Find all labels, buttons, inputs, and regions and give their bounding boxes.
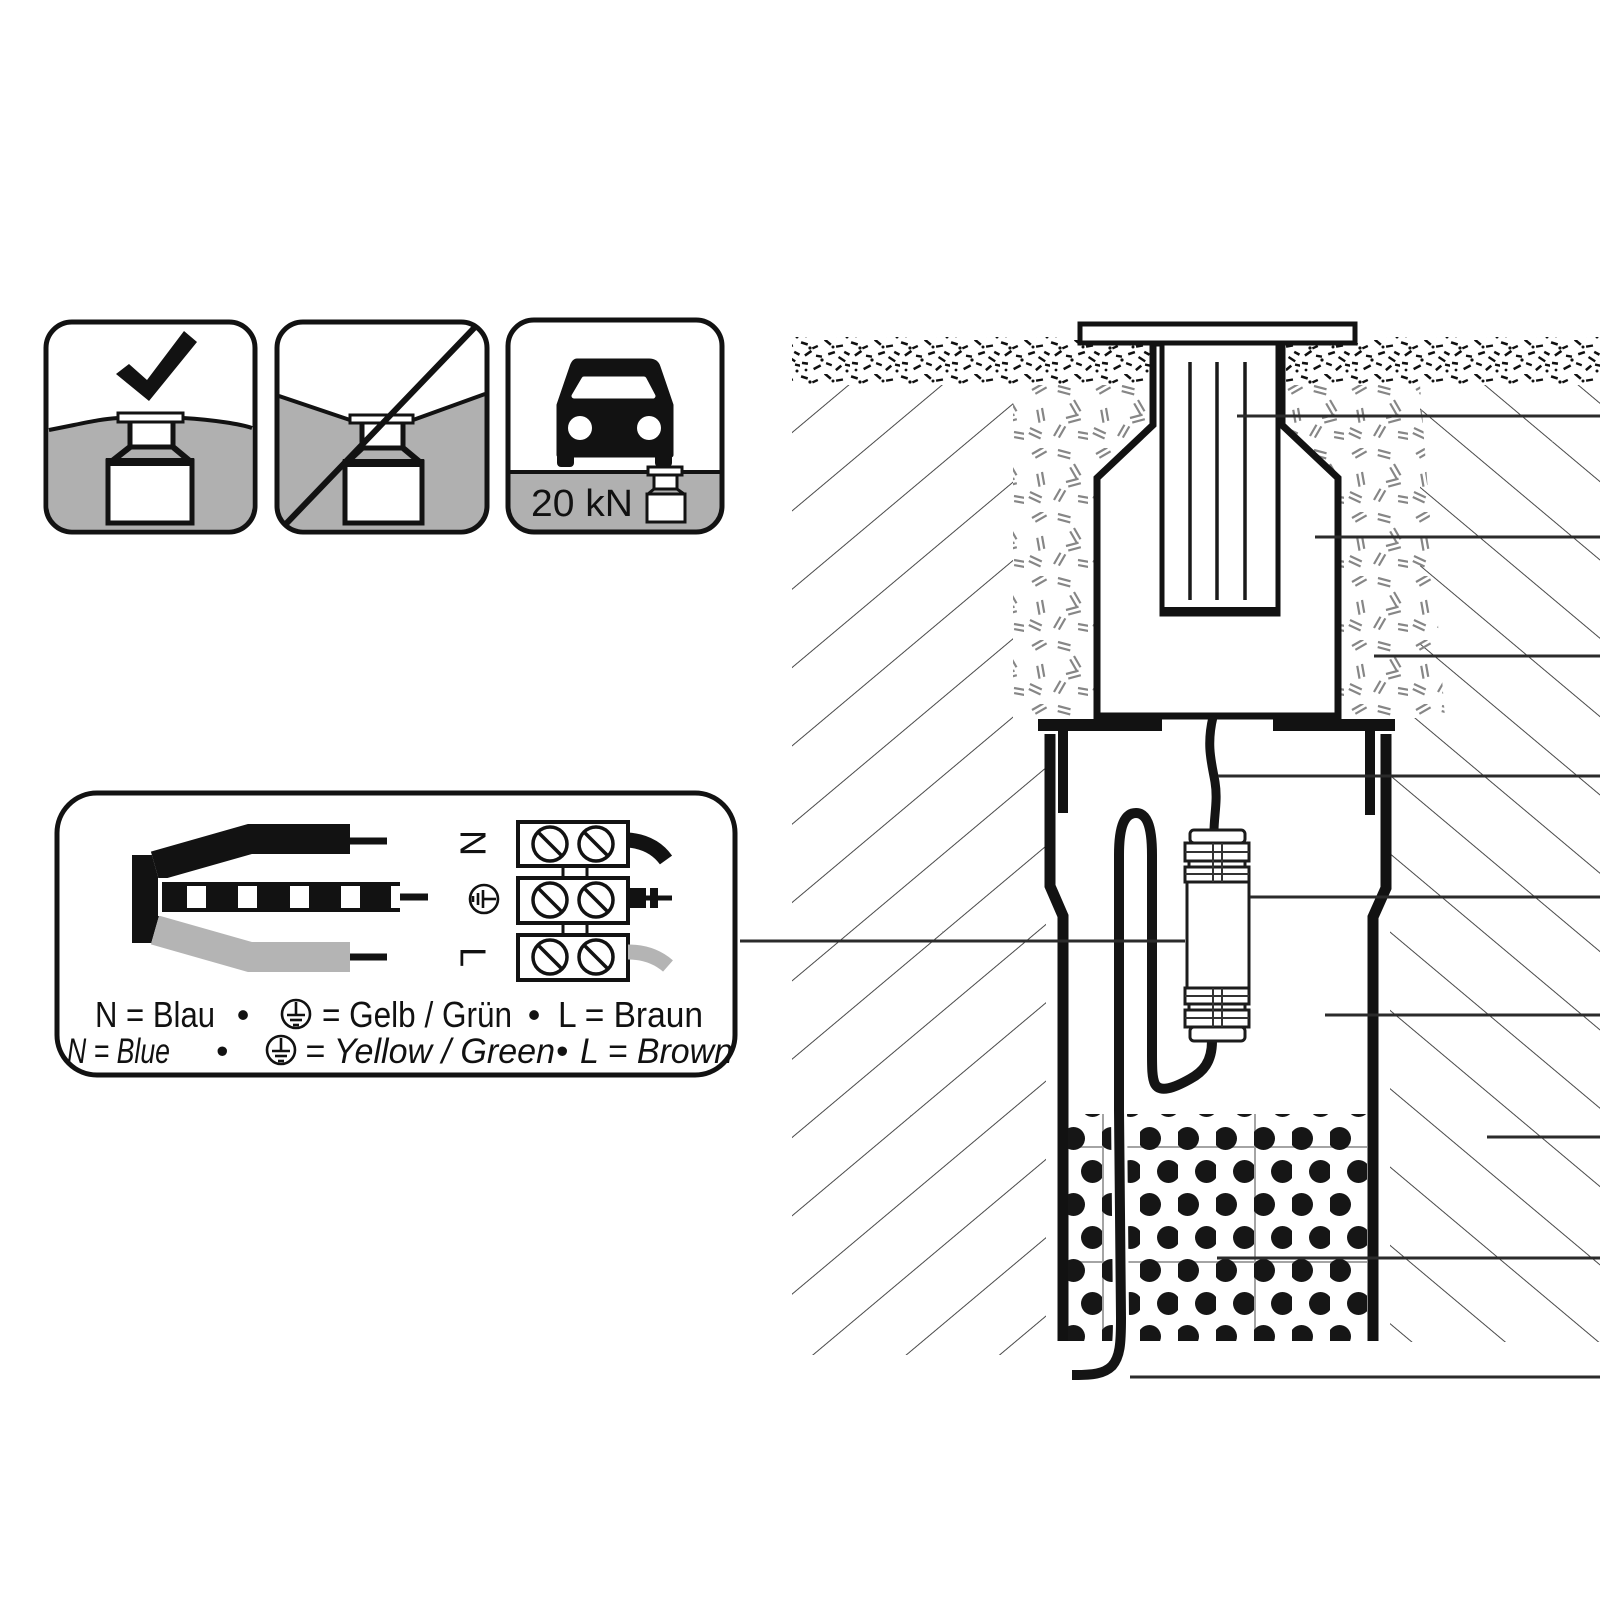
- fixture-cable: [1210, 717, 1216, 831]
- terminal-label-n: N: [452, 830, 493, 856]
- car-icon: [557, 361, 672, 467]
- cover-flange: [1080, 324, 1355, 343]
- svg-text:L = Brown: L = Brown: [580, 1032, 733, 1071]
- check-icon: [116, 331, 197, 401]
- svg-text:N = Blau: N = Blau: [95, 994, 215, 1035]
- svg-text:N = Blue: N = Blue: [67, 1032, 170, 1071]
- approved-install-icon: [46, 322, 255, 532]
- instruction-sheet: 20 kN N L: [0, 0, 1600, 1600]
- diagram-canvas: 20 kN N L: [0, 0, 1600, 1600]
- wire-earth: [158, 878, 428, 916]
- svg-text:= Yellow / Green: = Yellow / Green: [305, 1032, 555, 1071]
- svg-text:•: •: [237, 994, 250, 1035]
- svg-text:•: •: [528, 994, 541, 1035]
- wiring-instruction-box: N L N = B: [57, 793, 735, 1075]
- legend-line-en: N = Blue • = Yellow / Green • L = Brown: [67, 1032, 733, 1071]
- prohibited-install-icon: [277, 322, 487, 532]
- svg-text:L = Braun: L = Braun: [558, 994, 703, 1035]
- svg-text:= Gelb / Grün: = Gelb / Grün: [322, 994, 512, 1035]
- installation-cross-section: [740, 324, 1600, 1377]
- svg-text:•: •: [556, 1032, 568, 1071]
- ground-tube-wall-right: [1373, 734, 1386, 1341]
- ground-tube-wall-left: [1050, 734, 1063, 1341]
- legend-line-de: N = Blau • = Gelb / Grün • L = Braun: [95, 994, 703, 1035]
- load-label: 20 kN: [531, 483, 633, 525]
- mini-luminaire-icon: [647, 467, 685, 522]
- drive-over-rating-icon: 20 kN: [508, 320, 722, 532]
- native-soil-left-hatch: [792, 385, 1046, 1355]
- svg-text:•: •: [216, 1032, 228, 1071]
- terminal-label-l: L: [452, 947, 493, 967]
- terminal-blocks: [518, 822, 628, 980]
- luminaire-insert: [1162, 343, 1278, 614]
- inline-connector: [1185, 830, 1249, 1041]
